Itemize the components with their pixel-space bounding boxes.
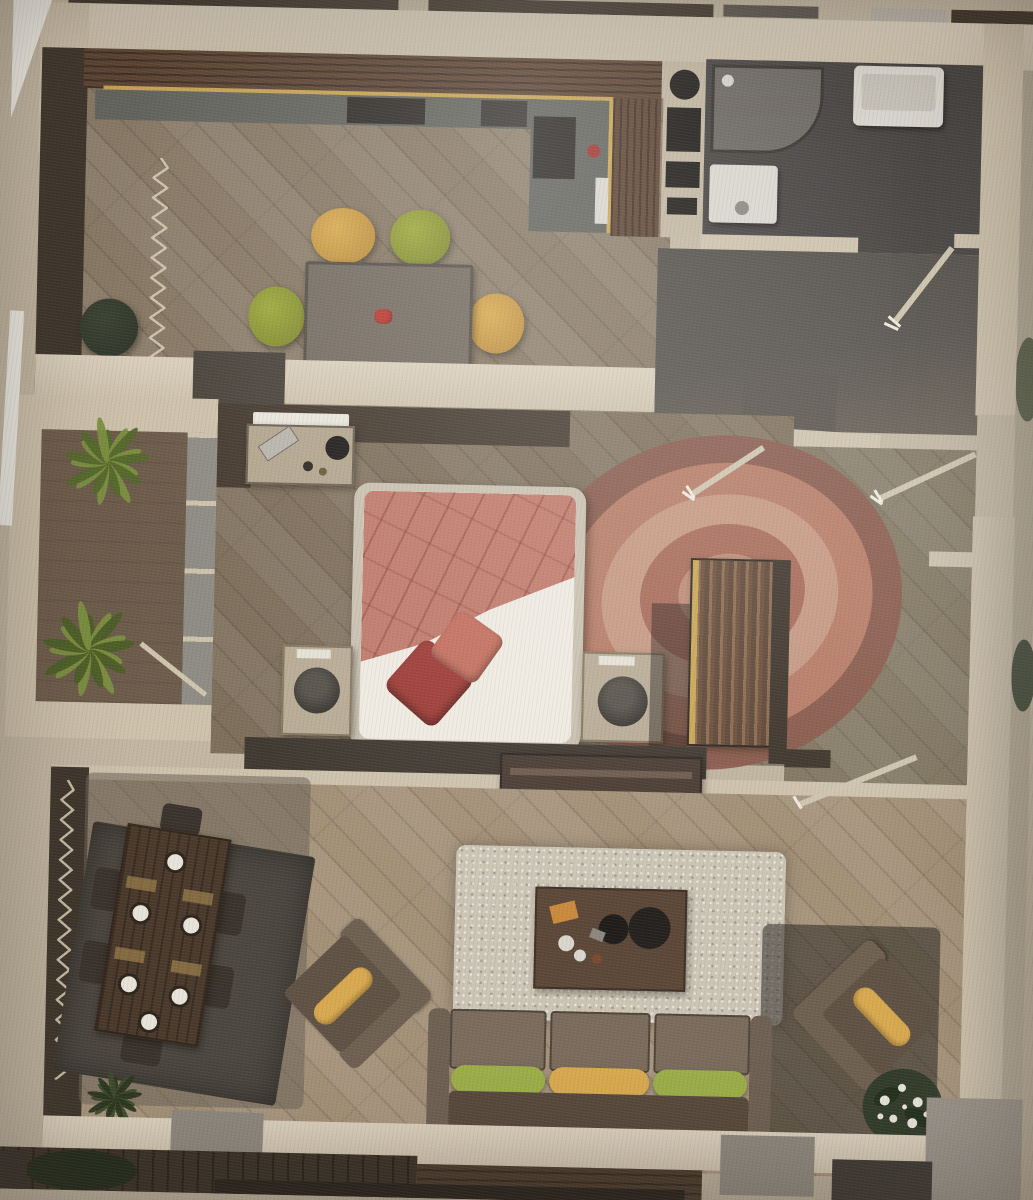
neighbour-furniture [723,5,818,19]
living-door-swing-icon [785,746,924,815]
nightstand-handle [297,649,331,659]
plan-paper [0,0,1033,1200]
appliance-icon [666,107,701,152]
corner-block [924,1097,1023,1200]
balcony-plant-icon [58,414,156,516]
balcony-plant-icon [35,597,141,707]
storage-door-swing-icon [864,446,983,509]
appliance-icon [665,161,700,188]
bedroom-shadow [648,603,690,762]
terrace-dark-edge [0,1150,27,1189]
terrace-floor-right [831,1159,932,1200]
appliance-icon [667,197,697,215]
apartment-plan [0,0,1033,1200]
bedroom-door-swing-icon [678,438,771,504]
sofa-back-cushion [449,1009,546,1071]
balcony-door-swing-icon [132,637,215,703]
support-column [720,1135,815,1197]
floor-plan-photo [0,0,1033,1200]
table-centerpiece-icon [374,309,392,324]
kitchen-counter-leg [610,98,661,237]
fridge-icon [595,178,609,224]
sofa-arm-left [426,1008,451,1130]
sofa-arm-right [748,1015,773,1137]
sofa-back-cushion [549,1011,650,1073]
kitchen-left-wall [34,47,88,402]
cooktop-icon [347,97,426,125]
nightstand-handle [599,656,635,666]
sofa-back-cushion [653,1013,750,1075]
wardrobe [687,558,775,748]
washbasin-bowl [861,74,936,112]
oven-icon [533,116,576,179]
sink-icon [481,100,528,127]
entrance-door-swing-icon [842,235,964,333]
